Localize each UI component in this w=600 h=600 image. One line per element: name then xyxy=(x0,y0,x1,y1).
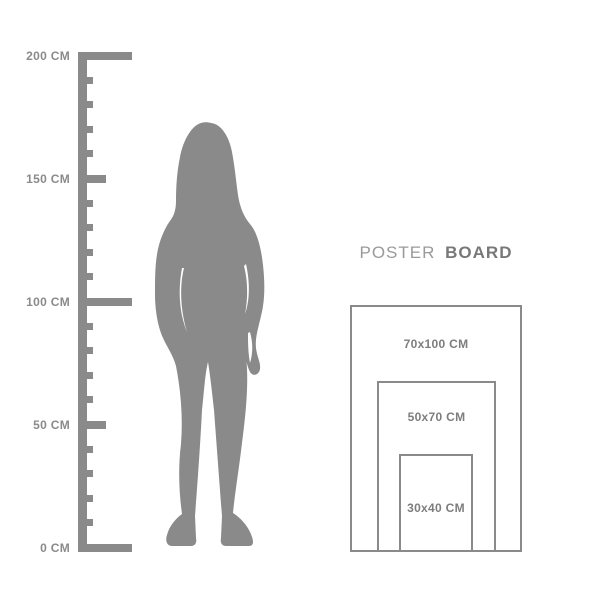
poster-size-label-30x40: 30x40 CM xyxy=(399,501,473,515)
poster-size-guide-diagram: 200 CM 150 CM 100 CM 50 CM 0 CM POSTER B… xyxy=(0,0,600,600)
poster-board-title: POSTER BOARD xyxy=(336,243,536,263)
poster-size-label-70x100: 70x100 CM xyxy=(350,337,522,351)
poster-board-title-regular: POSTER xyxy=(360,243,436,262)
poster-board-title-bold: BOARD xyxy=(445,243,512,262)
woman-silhouette-body xyxy=(155,122,264,546)
poster-size-label-50x70: 50x70 CM xyxy=(377,410,496,424)
